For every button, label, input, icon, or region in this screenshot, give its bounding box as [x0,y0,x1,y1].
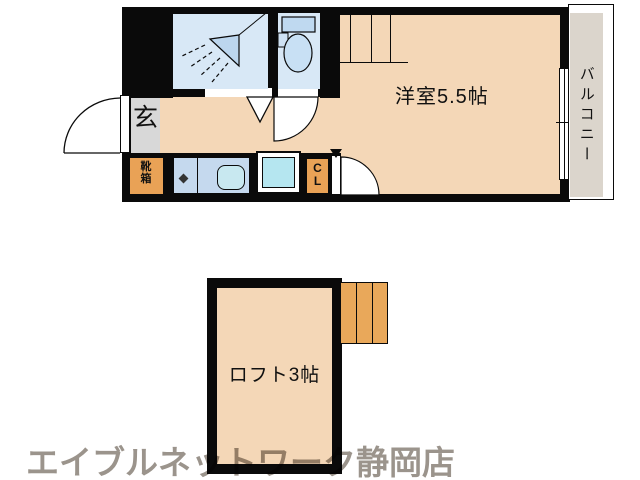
toilet-room [278,13,320,89]
stairs-upper-line-1 [350,15,351,62]
floorplan-image: 洋室5.5帖 玄 靴箱 CL バルコニー [0,0,640,480]
shoe-box-label: 靴箱 [139,162,153,185]
toilet-door-opening [278,88,318,97]
entrance-door-swing-icon [64,98,120,153]
sink-unit-frame [258,153,299,192]
loft-stairs-divider-2 [372,283,373,343]
stairs-upper-line-3 [390,15,391,62]
main-room-label: 洋室5.5帖 [395,87,489,108]
shower-door-opening [205,88,272,97]
stairs-upper-base-line [340,62,408,63]
loft-label: ロフト3帖 [217,366,332,386]
kitchen-sink-basin [217,165,245,190]
kitchen-divider-line [197,157,198,194]
entrance-door-leaf [120,95,130,153]
window-center-line [564,68,565,180]
loft-stairs-divider-1 [356,283,357,343]
sink-unit [256,151,301,194]
store-watermark: エイブルネットワーク静岡店 [26,436,455,480]
closet-label: CL [311,162,324,187]
shower-room [173,14,268,89]
room-door-leaf [331,155,341,195]
entrance-label: 玄 [133,105,158,131]
wall-chunk-top-left [122,7,173,98]
stairs-upper-line-2 [371,15,372,62]
wall-shower-toilet-divider [268,7,278,97]
balcony-label: バルコニー [578,36,594,196]
wall-chunk-toilet-right [320,7,340,98]
sink-unit-basin [262,157,295,188]
loft-stairs [340,282,388,344]
